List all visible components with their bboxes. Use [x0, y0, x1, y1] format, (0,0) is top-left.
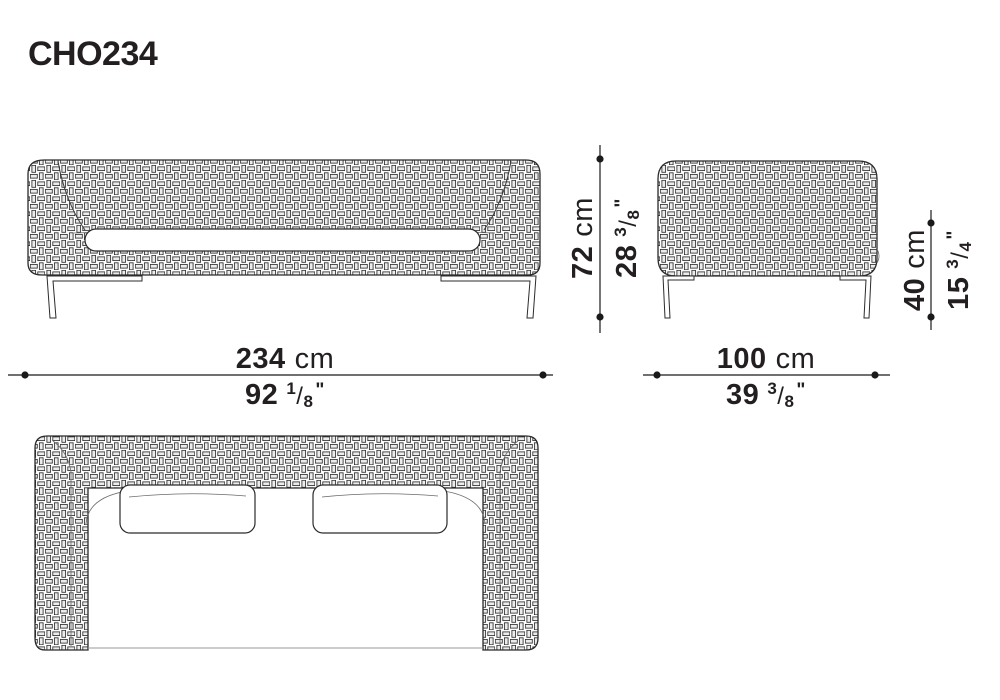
front-body — [28, 160, 540, 275]
dimension-seat-height: 40cm 153/4" — [899, 210, 975, 330]
top-back-cushion-right — [313, 485, 447, 533]
side-depth-cm-label: 100cm — [717, 343, 816, 375]
side-depth-dot-right — [871, 371, 878, 378]
front-width-cm-label: 234cm — [236, 343, 335, 375]
front-width-dot-left — [21, 371, 28, 378]
seat-height-inch-label: 153/4" — [943, 230, 975, 310]
front-width-inch-label: 921/8" — [245, 379, 325, 411]
overall-height-cm-label: 72cm — [567, 197, 599, 279]
top-frame — [35, 436, 538, 650]
overall-height-dot-top — [596, 155, 603, 162]
side-view — [658, 161, 879, 318]
front-width-dot-right — [539, 371, 546, 378]
dimension-side-depth: 100cm 393/8" — [643, 343, 890, 411]
top-back-cushion-left — [120, 485, 255, 533]
seat-height-dot-bottom — [927, 313, 934, 320]
front-view — [28, 160, 540, 318]
side-front-leg — [840, 276, 871, 318]
technical-drawing: CHO234 234cm 921/8" — [0, 0, 1000, 700]
overall-height-inch-label: 283/8" — [611, 198, 643, 278]
spec-sheet-page: CHO234 234cm 921/8" — [0, 0, 1000, 700]
product-code: CHO234 — [28, 35, 158, 73]
dimension-overall-height: 72cm 283/8" — [567, 145, 643, 333]
side-depth-inch-label: 393/8" — [726, 379, 806, 411]
side-back-leg — [663, 276, 694, 318]
top-view — [35, 436, 538, 650]
side-body — [658, 161, 877, 276]
seat-height-dot-top — [927, 219, 934, 226]
front-seat-cushion — [85, 229, 480, 251]
seat-height-cm-label: 40cm — [899, 229, 931, 311]
side-depth-dot-left — [653, 371, 660, 378]
overall-height-dot-bottom — [596, 313, 603, 320]
front-right-leg — [441, 276, 536, 318]
front-left-leg — [47, 276, 142, 318]
dimension-front-width: 234cm 921/8" — [8, 343, 553, 411]
